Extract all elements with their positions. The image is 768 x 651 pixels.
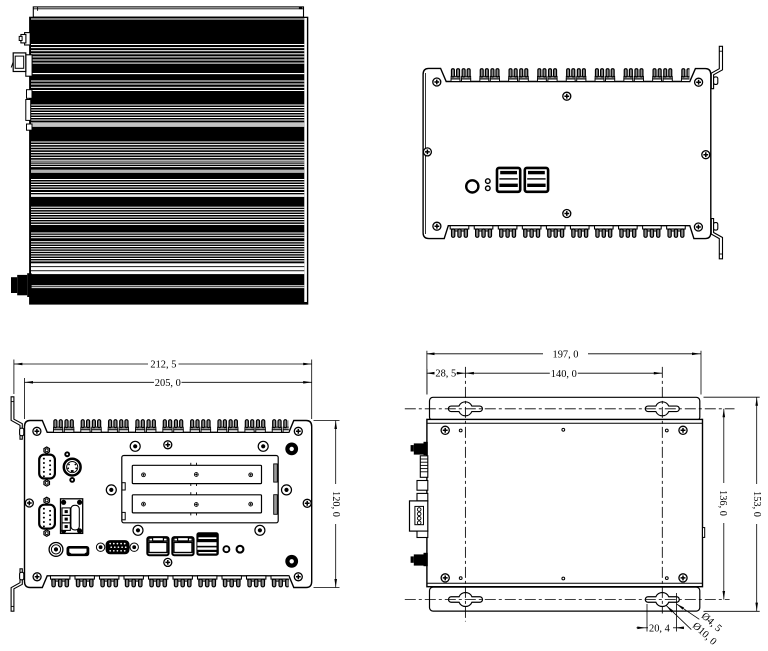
svg-text:212, 5: 212, 5 [150, 360, 176, 371]
svg-text:136, 0: 136, 0 [717, 490, 728, 516]
svg-text:120, 0: 120, 0 [330, 491, 341, 517]
svg-text:28, 5: 28, 5 [435, 369, 456, 380]
svg-text:197, 0: 197, 0 [553, 350, 579, 361]
svg-text:153, 0: 153, 0 [751, 491, 762, 517]
svg-text:20, 4: 20, 4 [649, 623, 671, 634]
svg-text:205, 0: 205, 0 [155, 378, 181, 389]
svg-text:140, 0: 140, 0 [551, 369, 577, 380]
